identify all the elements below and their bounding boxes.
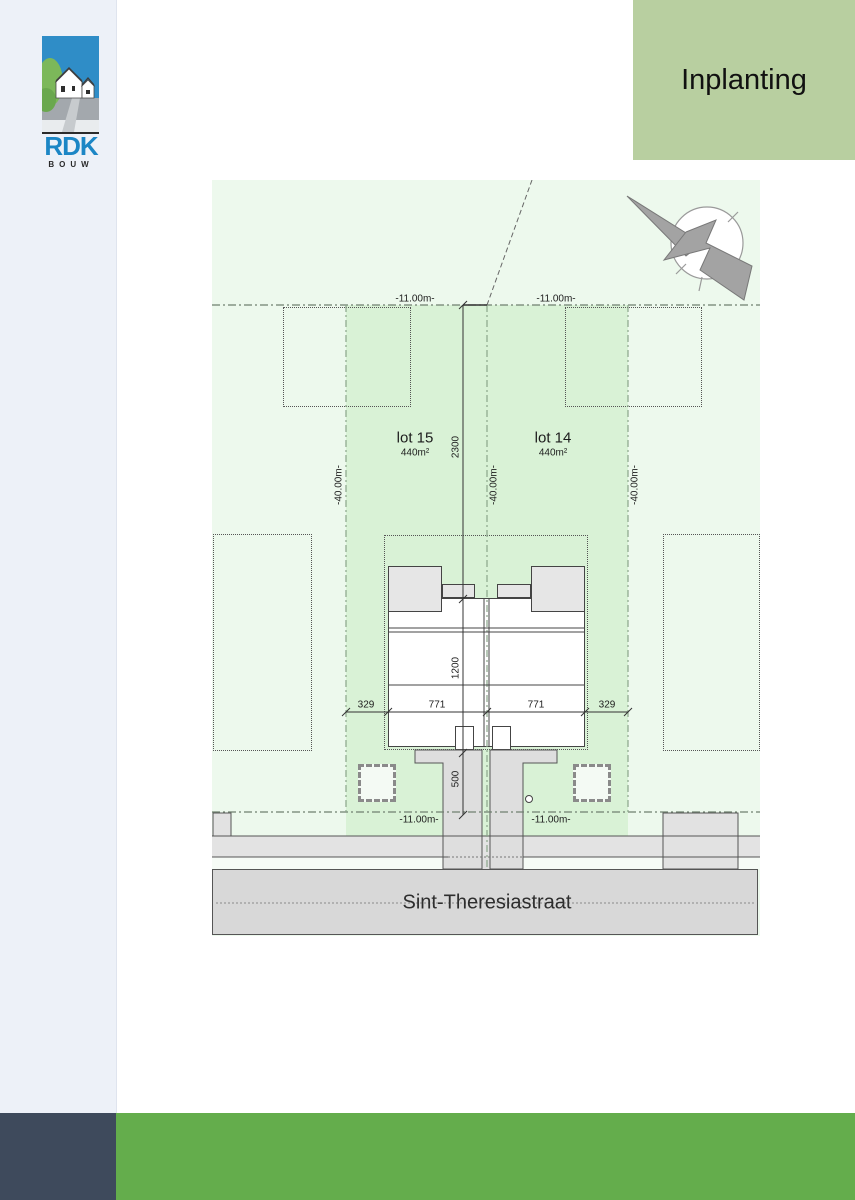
dim-rear-to-house: 2300 — [451, 436, 462, 458]
company-logo-image — [42, 36, 99, 134]
site-plan: -11.00m- -11.00m- -11.00m- -11.00m- -40.… — [212, 180, 760, 936]
boundary-diagonal — [487, 180, 532, 305]
dim-house-right: 771 — [528, 700, 545, 711]
side-neighbor-building-left — [213, 534, 312, 751]
garage-link-right — [497, 584, 531, 598]
sidewalk-band — [212, 836, 760, 857]
dim-side-right: 329 — [599, 700, 616, 711]
footer-dark-block — [0, 1113, 116, 1200]
dim-rear-left: -11.00m- — [395, 294, 434, 305]
lot-15-name: lot 15 — [397, 430, 434, 447]
garage-block-left — [388, 566, 442, 612]
sheet-title-block: Inplanting — [633, 0, 855, 160]
north-arrow-icon — [627, 196, 752, 300]
dim-house-depth: 1200 — [451, 657, 462, 679]
dim-front-left: -11.00m- — [399, 815, 438, 826]
dim-house-left: 771 — [429, 700, 446, 711]
footer-green-band — [116, 1113, 855, 1200]
rear-neighbor-building-left — [283, 307, 411, 407]
logo-subtext: BOUW — [38, 160, 104, 169]
terrace-left — [358, 764, 396, 802]
page: RDK BOUW Inplanting — [0, 0, 855, 1200]
dim-side-left: 329 — [358, 700, 375, 711]
terrace-right — [573, 764, 611, 802]
dim-front-garden: 500 — [451, 771, 462, 788]
dim-front-right: -11.00m- — [531, 815, 570, 826]
side-neighbor-building-right — [663, 534, 760, 751]
entrance-porch-left — [455, 726, 474, 750]
dim-rear-right: -11.00m- — [536, 294, 575, 305]
lot-14-area: 440m² — [539, 448, 567, 459]
dim-depth-center: -40.00m- — [489, 465, 500, 505]
garage-link-left — [442, 584, 475, 598]
verge-band — [212, 857, 760, 869]
dim-depth-left: -40.00m- — [334, 465, 345, 505]
street-name: Sint-Theresiastraat — [403, 892, 572, 915]
entrance-porch-right — [492, 726, 511, 750]
logo-text: RDK — [38, 134, 104, 158]
lot-14-name: lot 14 — [535, 430, 572, 447]
sheet-title: Inplanting — [681, 64, 807, 97]
house-footprint — [388, 598, 585, 747]
rear-neighbor-building-right — [565, 307, 702, 407]
neighbor-driveway-left — [213, 813, 231, 836]
dim-depth-right: -40.00m- — [630, 465, 641, 505]
lot-15-area: 440m² — [401, 448, 429, 459]
garage-block-right — [531, 566, 585, 612]
